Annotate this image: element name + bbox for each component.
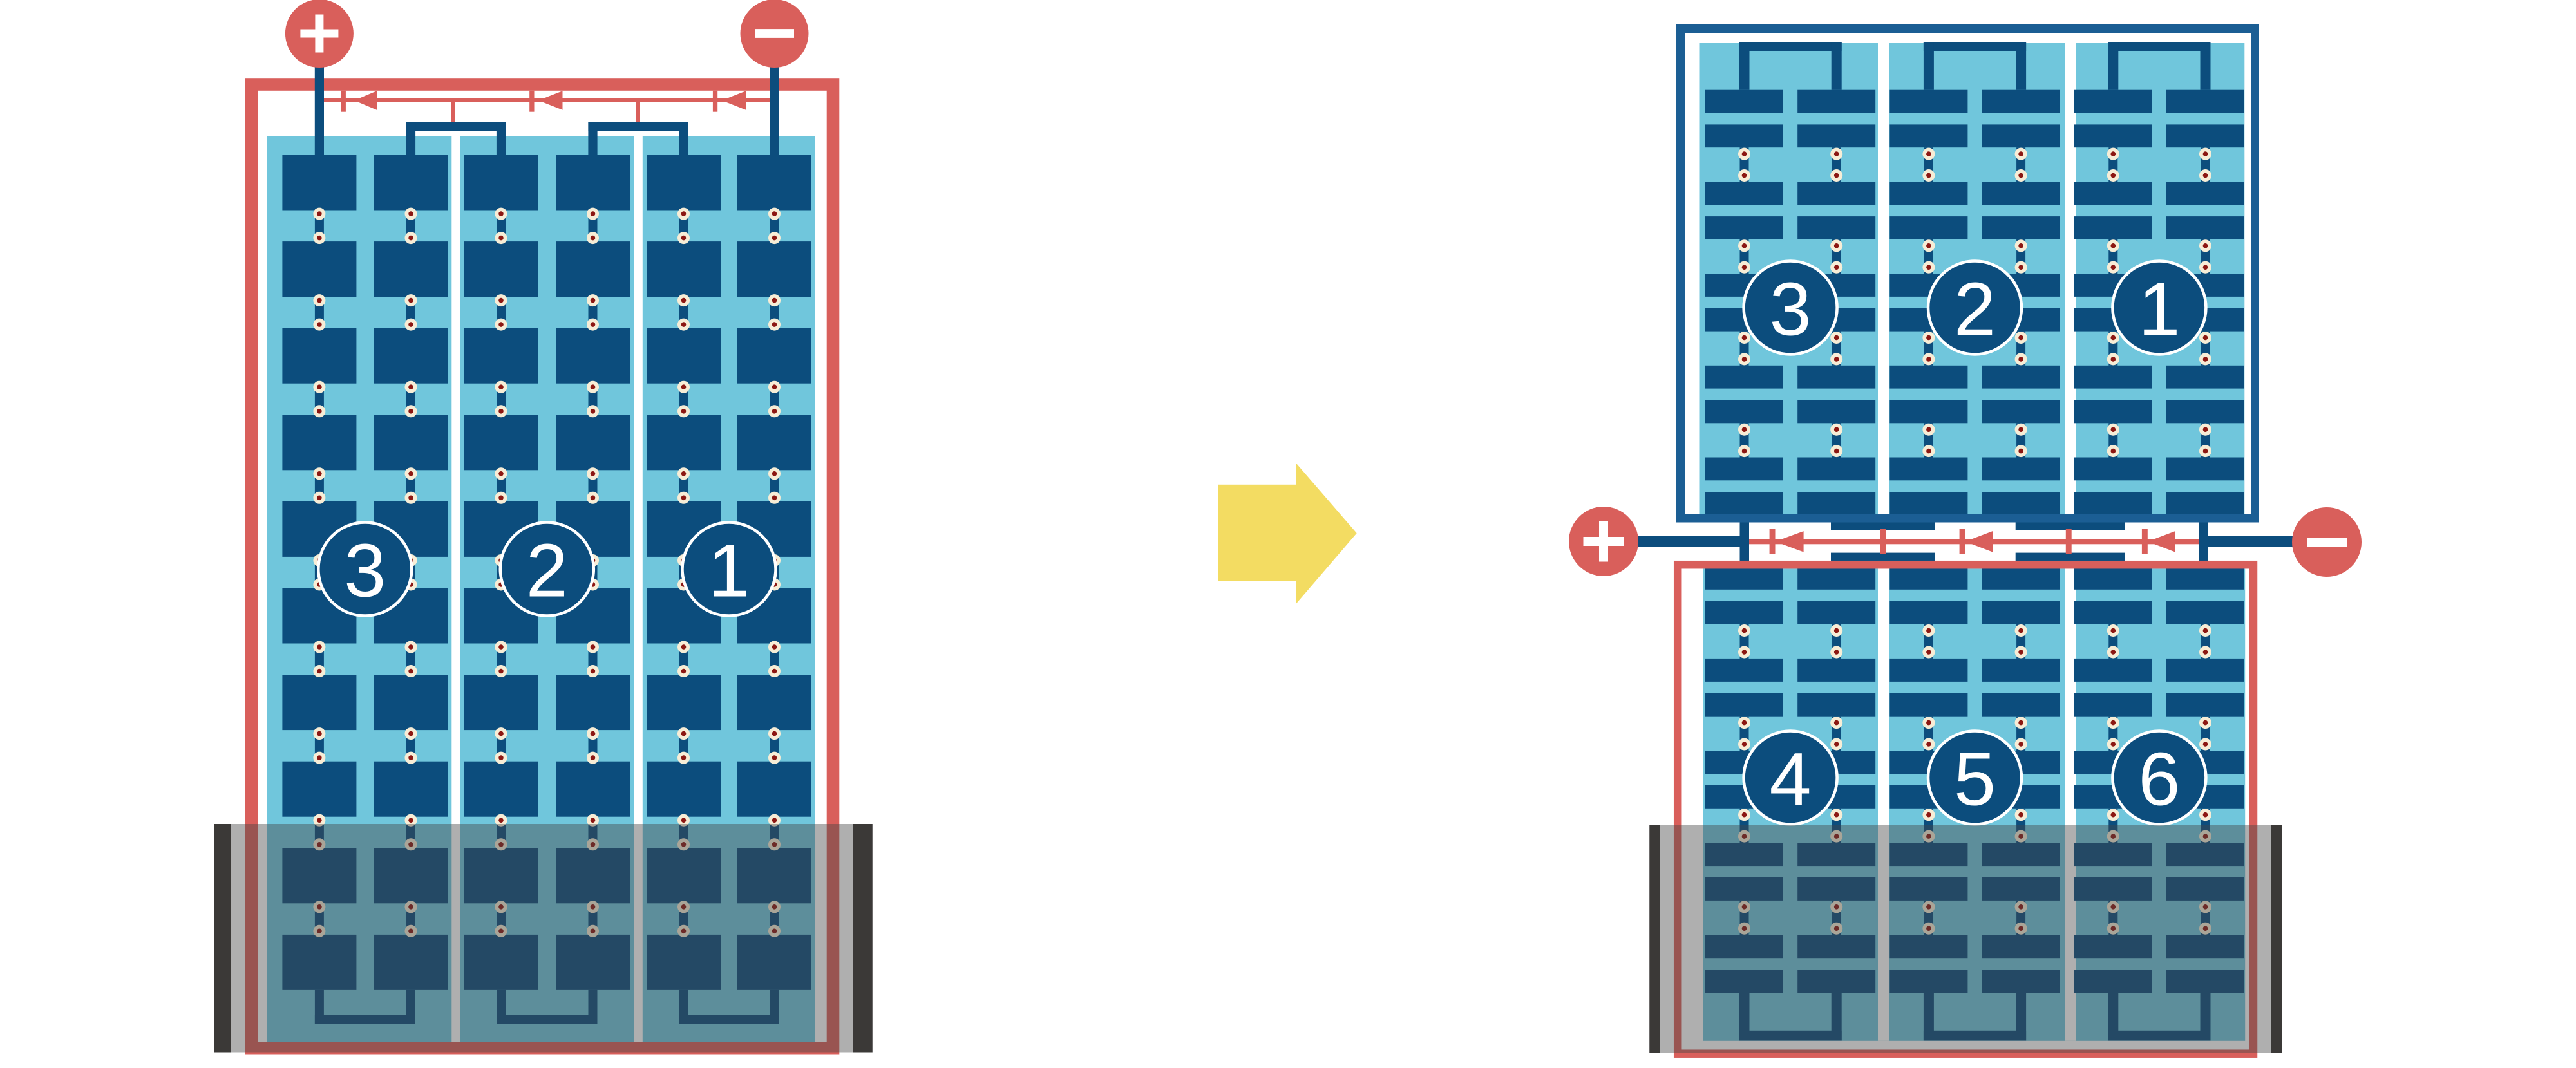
svg-text:3: 3 — [344, 529, 386, 613]
svg-text:2: 2 — [1954, 267, 1996, 351]
svg-text:3: 3 — [1770, 267, 1812, 351]
svg-text:4: 4 — [1770, 737, 1812, 821]
svg-text:5: 5 — [1954, 737, 1996, 821]
svg-text:2: 2 — [526, 529, 568, 613]
svg-text:6: 6 — [2138, 737, 2180, 821]
svg-text:1: 1 — [2138, 267, 2180, 351]
svg-text:1: 1 — [708, 529, 750, 613]
